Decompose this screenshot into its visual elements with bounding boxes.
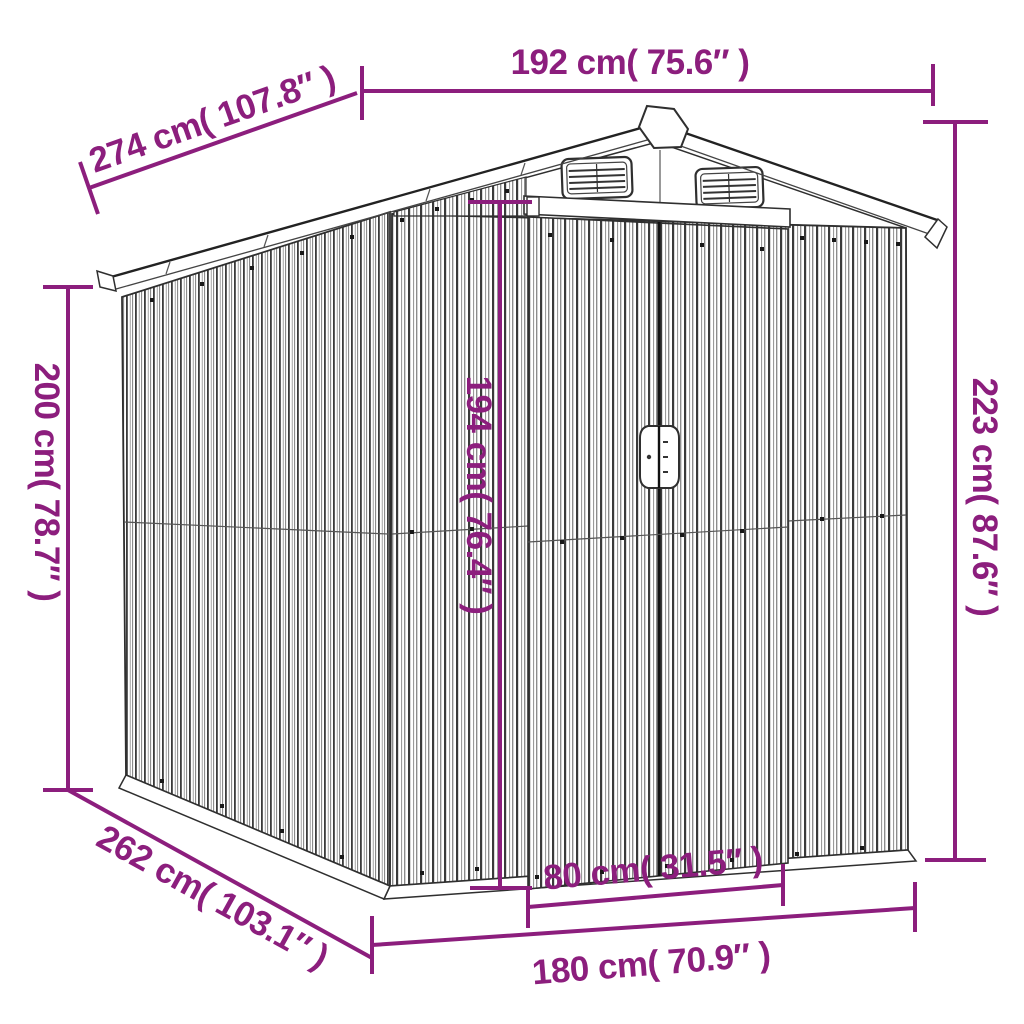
roof-panel-joint: [264, 235, 268, 247]
left-side-wall: [122, 212, 390, 886]
screw-dot: [680, 533, 684, 537]
dim-label-door-height: 194 cm( 76.4″ ): [459, 376, 498, 615]
dim-label-base-width: 180 cm( 70.9″ ): [531, 935, 772, 993]
gable-vent-right: [695, 167, 763, 209]
screw-dot: [280, 829, 284, 833]
screw-dot: [150, 298, 154, 302]
screw-dot: [420, 871, 424, 875]
door-track-bracket: [527, 197, 539, 216]
dimension-roof-depth-top: 274 cm( 107.8″ ): [80, 58, 357, 214]
screw-dot: [610, 238, 614, 242]
screw-dot: [505, 189, 509, 193]
screw-dot: [220, 804, 224, 808]
screw-dot: [700, 243, 704, 247]
roof-end-cap-front: [925, 219, 947, 248]
shed-line-art: [97, 106, 947, 899]
screw-dot: [740, 529, 744, 533]
screw-dot: [350, 235, 354, 239]
screw-dot: [400, 218, 404, 222]
screw-dot: [340, 855, 344, 859]
dim-label-overall-width-top: 192 cm( 75.6″ ): [511, 43, 750, 82]
screw-dot: [160, 779, 164, 783]
screw-dot: [410, 530, 414, 534]
roof-apex-cap: [639, 106, 688, 148]
front-wall-upper-left-panel: [394, 177, 526, 216]
screw-dot: [620, 536, 624, 540]
screw-dot: [548, 233, 552, 237]
screw-dot: [860, 846, 864, 850]
roof-panel-joint: [426, 189, 430, 201]
dim-label-rear-wall-height: 200 cm( 78.7″ ): [27, 363, 66, 602]
screw-dot: [864, 240, 868, 244]
dim-label-roof-depth-top: 274 cm( 107.8″ ): [84, 58, 340, 181]
roof-panel-joint: [166, 262, 170, 274]
gable-vent-left: [561, 157, 632, 199]
shed-dimension-diagram: 192 cm( 75.6″ ) 274 cm( 107.8″ ) 200 cm(…: [0, 0, 1024, 1024]
screw-dot: [435, 207, 439, 211]
door-handle: [640, 426, 679, 488]
roof-end-cap-rear: [97, 271, 116, 291]
screw-dot: [832, 238, 836, 242]
screw-dot: [200, 282, 204, 286]
dimension-rear-wall-height: 200 cm( 78.7″ ): [27, 287, 93, 790]
screw-dot: [795, 852, 799, 856]
screw-dot: [760, 247, 764, 251]
screw-dot: [250, 266, 254, 270]
screw-dot: [896, 242, 900, 246]
screw-dot: [300, 251, 304, 255]
diagram-canvas: 192 cm( 75.6″ ) 274 cm( 107.8″ ) 200 cm(…: [0, 0, 1024, 1024]
dim-label-front-wall-height: 223 cm( 87.6″ ): [965, 378, 1004, 617]
screw-dot: [535, 875, 539, 879]
screw-dot: [800, 236, 804, 240]
roof-panel-joint: [521, 163, 525, 175]
screw-dot: [560, 540, 564, 544]
screw-dot: [880, 514, 884, 518]
screw-dot: [820, 517, 824, 521]
screw-dot: [475, 867, 479, 871]
